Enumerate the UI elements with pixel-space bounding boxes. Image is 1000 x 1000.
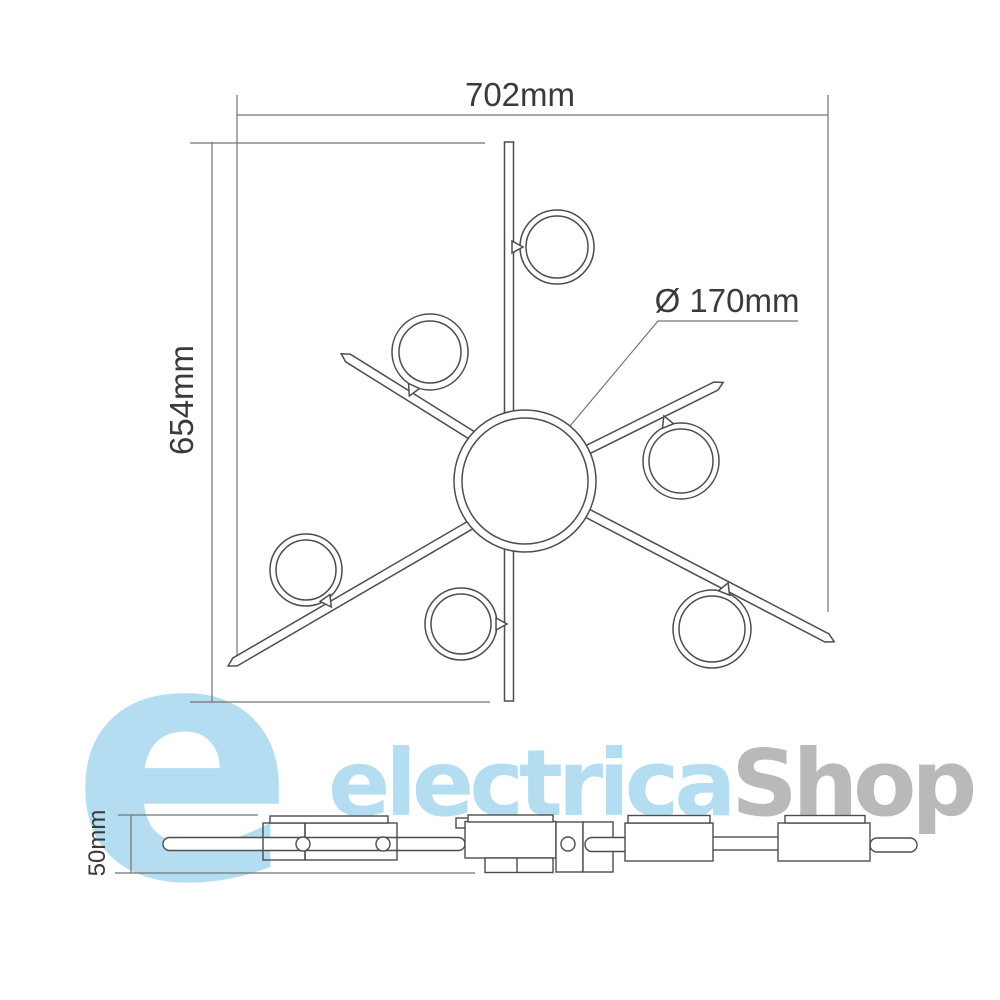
side-rod-right-b (870, 838, 917, 852)
side-canopy-box (465, 822, 556, 859)
technical-drawing-canvas: e electricaShop 702mm 654mm Ø 170mm 50mm (0, 0, 1000, 1000)
lamp-ring-lower-right (673, 590, 751, 668)
side-canopy-tabs (485, 858, 553, 873)
side-housing-mid (625, 823, 713, 861)
dim-width-label: 702mm (465, 76, 575, 113)
side-canopy-lip (468, 815, 553, 822)
dim-diameter-label: Ø 170mm (655, 282, 800, 319)
dim-height-label: 654mm (163, 345, 200, 455)
side-rod-left (163, 838, 465, 851)
side-rod-right-a (710, 837, 780, 850)
side-housing-right-lip (785, 816, 865, 824)
lamp-ring-lower-left (270, 534, 342, 606)
side-screw-left-a (296, 837, 310, 851)
central-plate-inner (462, 418, 588, 544)
lamp-top-view (226, 142, 836, 701)
side-housing-mid-lip (628, 816, 710, 824)
lamp-ring-top (520, 210, 594, 284)
side-housing-left-lip (270, 816, 388, 823)
lamp-ring-upper-left (392, 314, 468, 390)
product-dimension-drawing: e electricaShop 702mm 654mm Ø 170mm 50mm (0, 0, 1000, 1000)
side-housing-right (778, 823, 870, 861)
logo-emblem-e: e (71, 572, 295, 956)
lamp-ring-upper-right (643, 423, 719, 499)
side-screw-center (561, 837, 575, 851)
lamp-ring-bottom-middle (425, 588, 497, 660)
dim-profile-height-label: 50mm (84, 810, 111, 877)
watermark-logo: e electricaShop (71, 572, 973, 956)
side-screw-left-b (376, 837, 390, 851)
dim-diameter-leader (570, 321, 798, 426)
